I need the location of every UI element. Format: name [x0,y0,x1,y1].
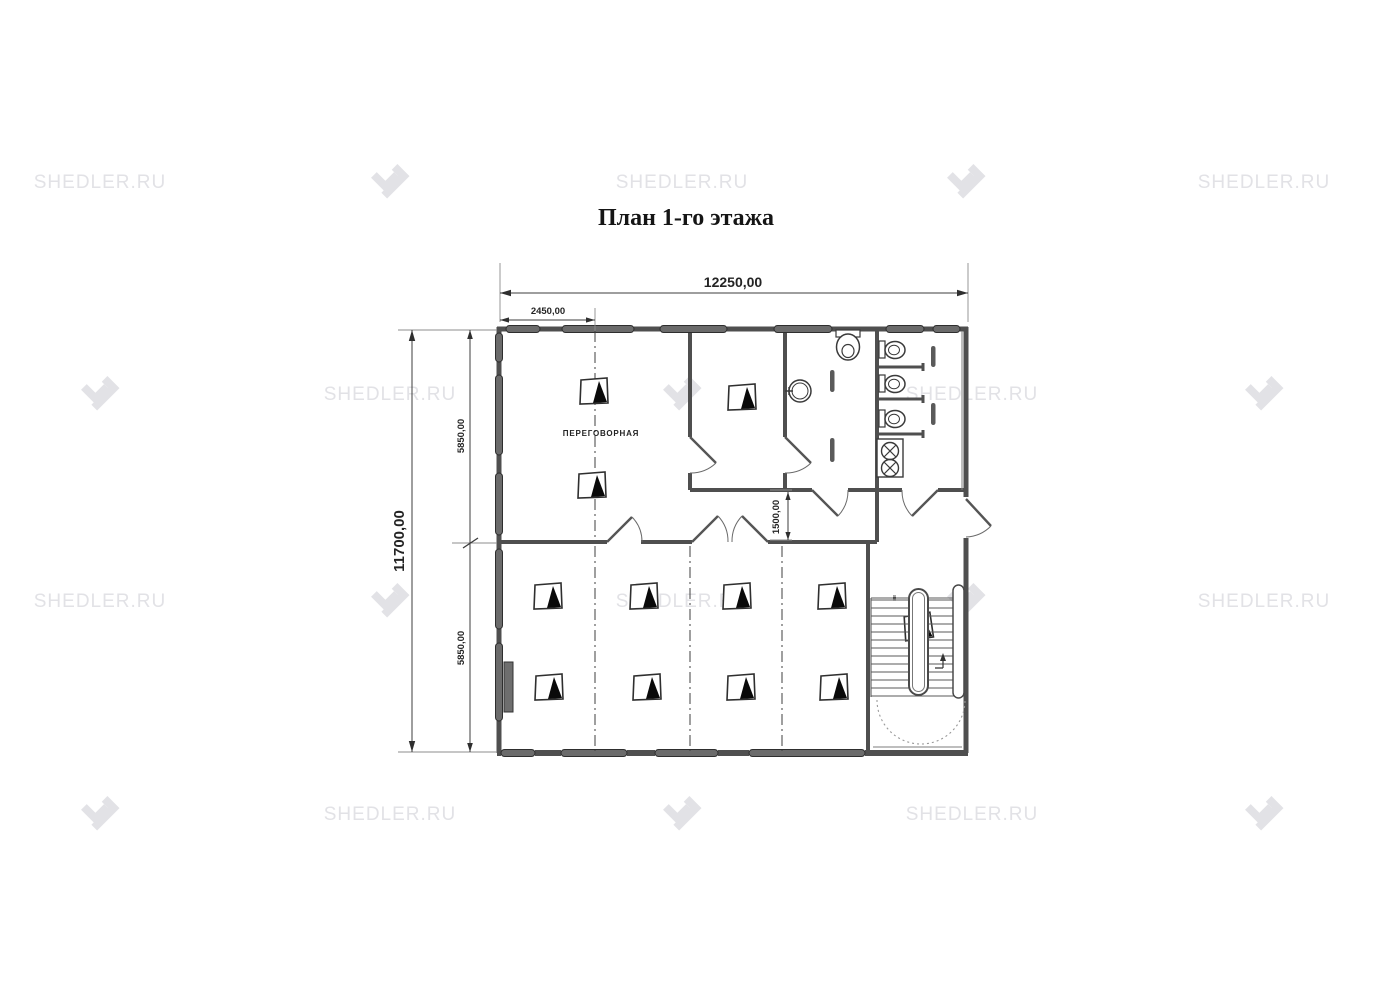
stair-label: вв [892,595,898,601]
dim-total-width: 12250,00 [704,274,763,290]
dim-corridor-height: 1500,00 [771,500,782,534]
desk-icon [535,674,563,700]
desk-icon [818,583,846,609]
door-arc [732,516,742,542]
radiator [504,662,513,712]
door-arc [966,526,991,537]
desks [534,378,934,700]
door-leaf [812,490,838,516]
door-leaf [912,490,938,516]
door-leaf [690,437,716,463]
toilet-icon [836,330,860,360]
door-leaf [692,516,718,542]
toilet-icon [879,375,905,393]
door-arc [690,463,716,473]
room-label-meeting: ПЕРЕГОВОРНАЯ [563,429,639,438]
desk-icon [723,583,751,609]
door-leaf [785,437,811,463]
desk-icon [578,472,606,498]
sink-icon [785,380,811,402]
dim-sub-width: 2450,00 [531,306,565,317]
door-arc [632,517,642,542]
dim-upper-height: 5850,00 [456,419,467,453]
staircase: вв [871,585,965,744]
toilet-icon [879,341,905,359]
door-leaf [966,499,991,526]
double-sink-icon [877,439,903,477]
stair-direction-arrow [935,653,946,668]
door-arc [718,516,728,542]
floor-plan-drawing: вв ПЕРЕГОВОРНАЯ [0,0,1400,990]
desk-icon [820,674,848,700]
desk-icon [727,674,755,700]
desk-icon [728,384,756,410]
desk-icon [630,583,658,609]
door-arc [902,490,912,516]
page-title: План 1-го этажа [598,205,774,232]
stair-handrail [909,585,964,698]
desk-icon [580,378,608,404]
dimension-lines [398,263,968,752]
dim-lower-height: 5850,00 [456,631,467,665]
desk-icon [633,674,661,700]
door-leaf [742,516,768,542]
desk-icon [534,583,562,609]
door-leaf [607,517,632,542]
door-arc [838,490,848,516]
door-arc [785,463,811,473]
stair-swing-dotted-arc [877,700,965,744]
dim-total-height: 11700,00 [391,510,408,572]
toilet-icon [879,410,905,428]
floor-plan-page: SHEDLER.RU SHEDLER.RU SHEDLER.RU SHEDLER… [0,0,1400,990]
